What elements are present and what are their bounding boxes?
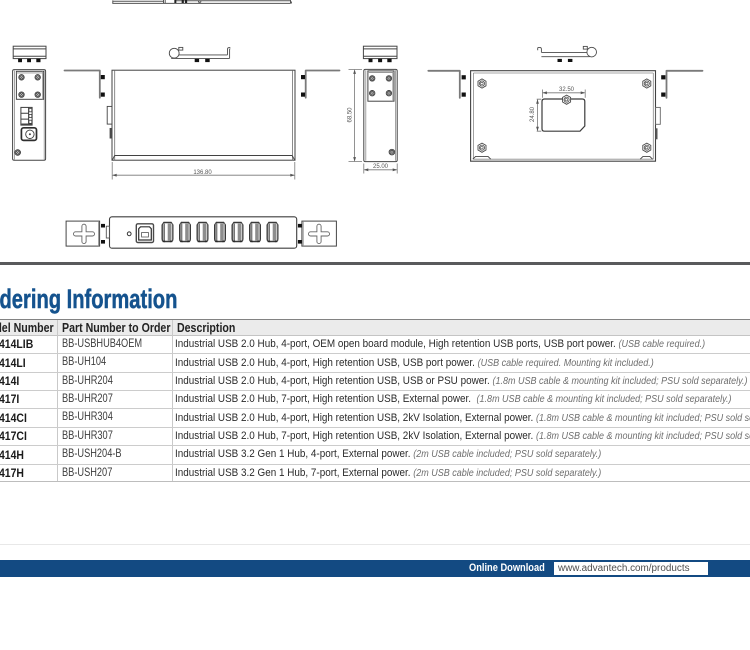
svg-text:136.80: 136.80 <box>193 170 212 176</box>
svg-text:68.50: 68.50 <box>348 107 354 123</box>
svg-text:24.80: 24.80 <box>530 106 536 122</box>
svg-text:32.50: 32.50 <box>559 87 575 93</box>
svg-text:25.00: 25.00 <box>373 164 389 170</box>
